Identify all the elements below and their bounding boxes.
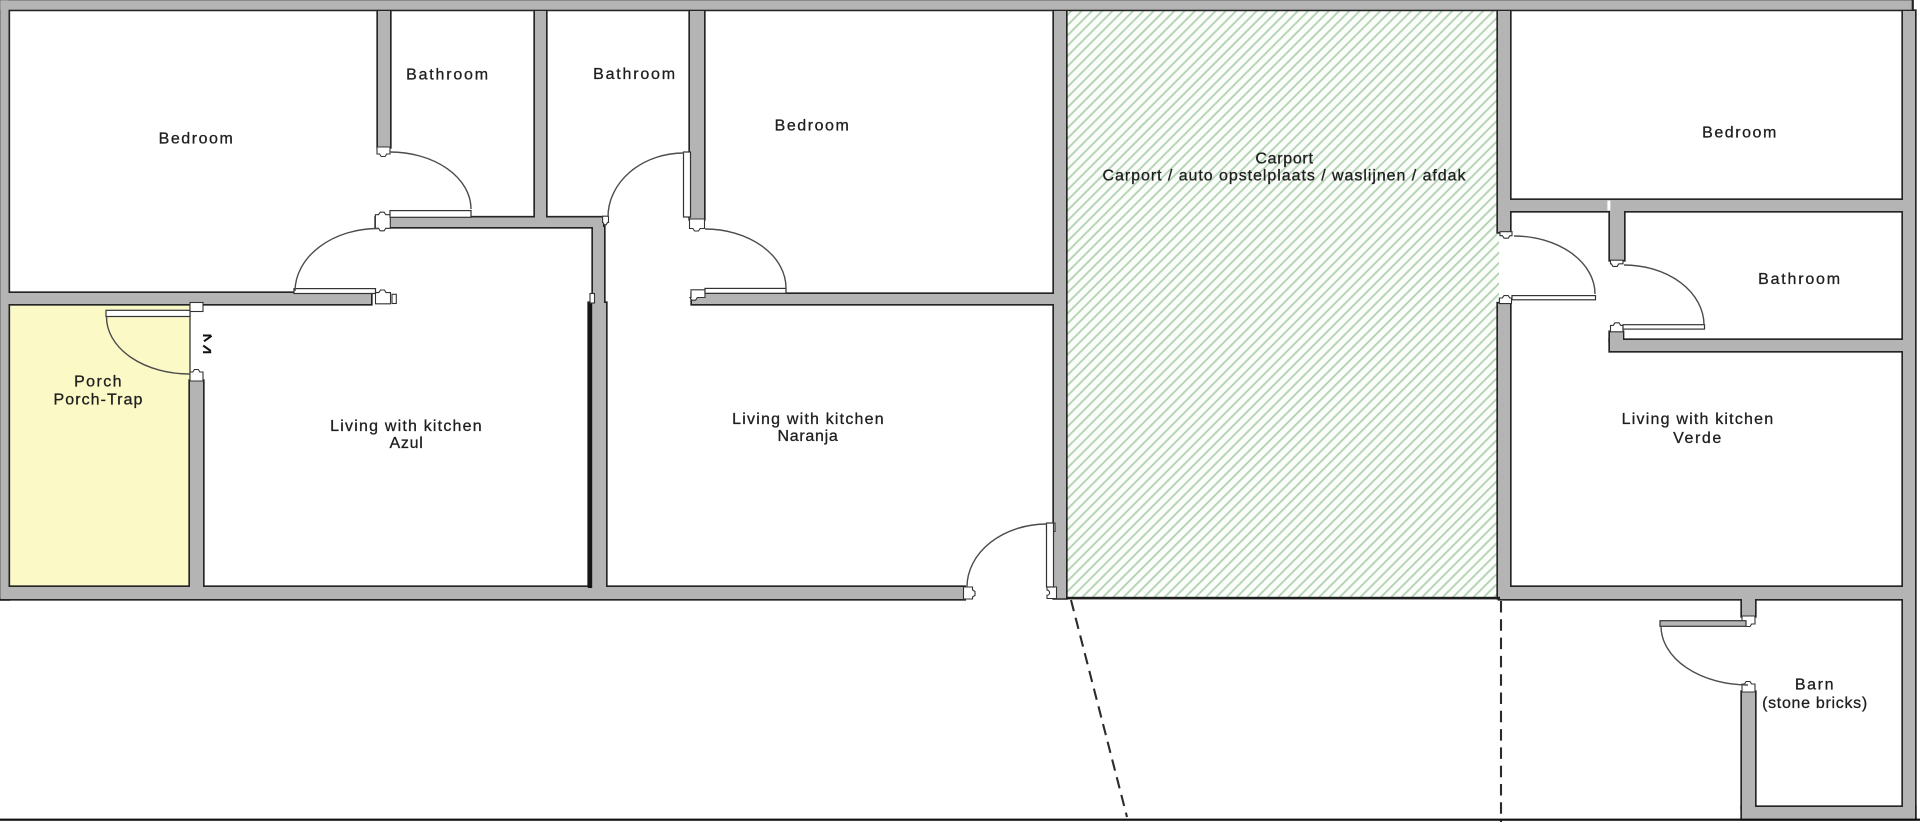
svg-text:Porch: Porch (74, 374, 123, 391)
svg-text:Verde: Verde (1673, 430, 1723, 447)
svg-text:Living with kitchen: Living with kitchen (732, 411, 885, 428)
svg-text:Naranja: Naranja (778, 428, 839, 445)
svg-text:Bathroom: Bathroom (593, 66, 677, 83)
svg-text:Bedroom: Bedroom (775, 118, 851, 135)
svg-text:Bedroom: Bedroom (1702, 125, 1778, 142)
svg-text:Porch-Trap: Porch-Trap (54, 392, 144, 409)
svg-text:Barn: Barn (1795, 677, 1835, 694)
svg-text:Carport: Carport (1255, 151, 1313, 168)
svg-text:Carport / auto opstelplaats /: Carport / auto opstelplaats / waslijnen … (1103, 168, 1467, 185)
svg-text:Living with kitchen: Living with kitchen (1622, 411, 1775, 428)
svg-text:Living with kitchen: Living with kitchen (330, 418, 483, 435)
svg-text:Bathroom: Bathroom (406, 67, 490, 84)
svg-text:Bathroom: Bathroom (1758, 271, 1842, 288)
svg-text:Bedroom: Bedroom (159, 131, 235, 148)
svg-text:(stone bricks): (stone bricks) (1762, 695, 1868, 712)
svg-text:Azul: Azul (390, 435, 424, 452)
